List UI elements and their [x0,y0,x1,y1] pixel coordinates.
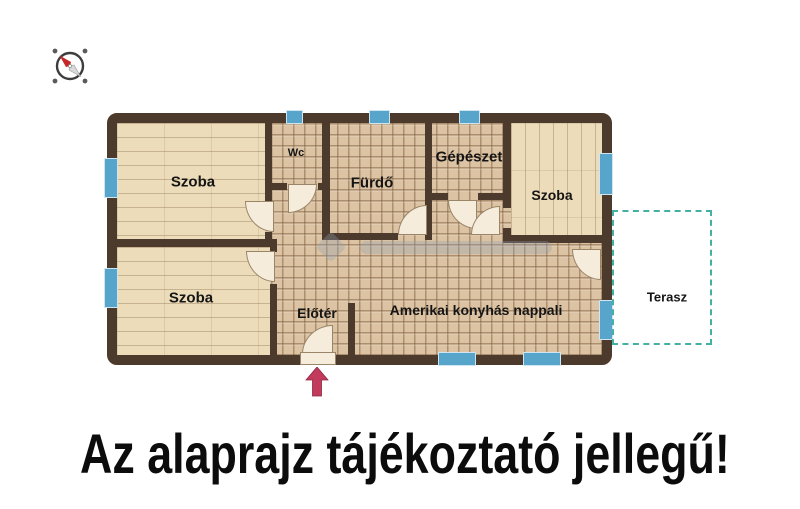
wall-segment [503,123,511,208]
terrace-outline [612,210,712,345]
wall-segment [270,284,277,355]
caption-text: Az alaprajz tájékoztató jellegű! [80,418,720,490]
wall-segment [265,123,272,202]
watermark [314,232,564,264]
room-label-furdo: Fürdő [351,175,394,192]
wall-segment [478,193,503,200]
window-marker [104,158,118,198]
room-label-gepeszet: Gépészet [436,149,503,166]
room-label-szoba-right: Szoba [531,187,572,203]
room-label-szoba-bottom-left: Szoba [169,290,213,307]
room-label-terasz: Terasz [647,290,687,305]
window-marker [369,110,390,124]
entrance-arrow-icon [305,367,329,397]
watermark-text [360,241,552,254]
wall-segment [322,123,330,240]
wall-segment [117,239,277,247]
window-marker [459,110,480,124]
window-marker [599,153,613,195]
wall-segment [348,303,355,355]
room-label-szoba-top-left: Szoba [171,174,215,191]
window-marker [438,352,476,366]
window-marker [104,268,118,308]
compass-icon [50,46,90,86]
room-label-wc: Wc [288,147,305,159]
floorplan-page: Szoba Szoba Wc Fürdő Gépészet Szoba Előt… [0,0,800,509]
door-leaf [300,352,336,365]
wall-segment [265,183,287,190]
wall-segment [432,193,448,200]
window-marker [599,300,613,340]
window-marker [523,352,561,366]
room-label-nappali: Amerikai konyhás nappali [390,302,563,318]
room-label-eloter: Előtér [297,305,337,321]
watermark-logo [315,231,346,262]
window-marker [286,110,303,124]
